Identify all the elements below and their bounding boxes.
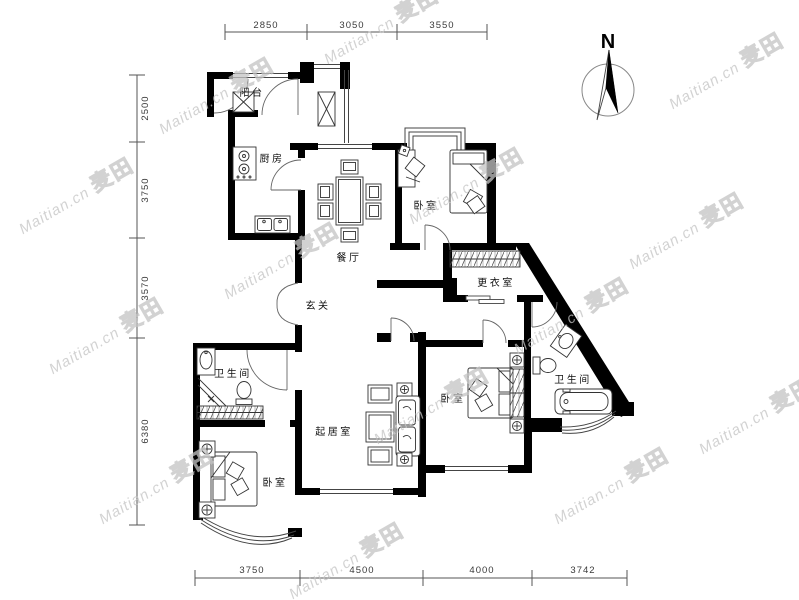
toilet-right-icon [533, 357, 556, 374]
shaft-icon [318, 92, 335, 126]
floor-plan: 2850 3050 3550 2500 3750 3570 6380 3750 … [0, 0, 799, 600]
dim-bottom-4: 3742 [570, 565, 595, 576]
dim-left-3: 3570 [140, 275, 151, 300]
room-label-dressing: 更衣室 [477, 276, 515, 289]
floor-plan-canvas: 2850 3050 3550 2500 3750 3570 6380 3750 … [0, 0, 799, 600]
bed-top-right [450, 150, 487, 214]
nightstand-bl-1 [199, 441, 215, 457]
dim-bottom-2: 4500 [349, 565, 374, 576]
sofa-set [366, 383, 420, 466]
closet-left [197, 406, 263, 419]
dim-left-1: 2500 [140, 95, 151, 120]
dim-bottom-1: 3750 [239, 565, 264, 576]
nightstand-right-2 [510, 419, 524, 433]
dim-top-2: 3050 [339, 20, 364, 31]
toilet-left-icon [236, 382, 252, 405]
bed-right [468, 368, 513, 418]
walls [193, 62, 634, 537]
room-label-bedroom-top: 卧室 [414, 199, 439, 212]
kitchen-sink-icon [255, 216, 290, 233]
north-label: N [601, 31, 615, 53]
room-label-bath-left: 卫生间 [214, 367, 252, 380]
north-arrow-icon: N [582, 31, 634, 120]
dim-left-4: 6380 [140, 418, 151, 443]
room-label-balcony: 阳台 [240, 86, 265, 99]
room-label-bedroom-right: 卧室 [441, 392, 466, 405]
sink-left-icon [197, 348, 215, 375]
shower-icon [198, 378, 226, 407]
nightstand-bl-2 [199, 502, 215, 518]
nightstand-right-1 [510, 353, 524, 367]
dining-table [318, 160, 381, 242]
dressing-closet [450, 251, 520, 267]
dim-left-2: 3750 [140, 177, 151, 202]
bed-bottom-left [211, 452, 257, 506]
desk-and-chair [398, 145, 425, 187]
room-label-living: 起居室 [315, 425, 353, 438]
room-label-bath-right: 卫生间 [554, 373, 592, 386]
stove-icon [233, 147, 256, 180]
room-label-bedroom-bottom: 卧室 [263, 476, 288, 489]
wardrobe-right [510, 369, 524, 417]
dim-top-3: 3550 [429, 20, 454, 31]
room-label-foyer: 玄关 [306, 299, 331, 312]
room-label-kitchen: 厨房 [260, 152, 285, 165]
dim-bottom-3: 4000 [469, 565, 494, 576]
bathtub-icon [555, 389, 612, 414]
dim-top-1: 2850 [253, 20, 278, 31]
room-label-dining: 餐厅 [337, 251, 362, 264]
